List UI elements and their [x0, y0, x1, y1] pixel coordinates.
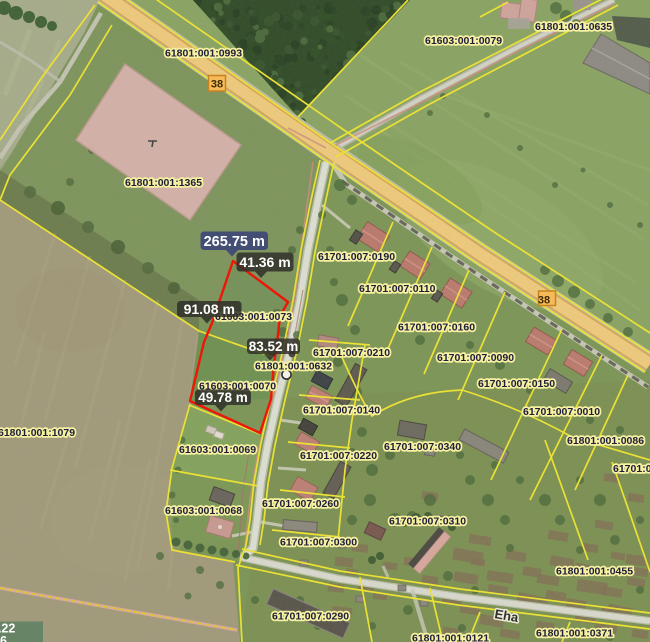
svg-text:61701:007:0160: 61701:007:0160	[398, 322, 475, 334]
svg-text:38: 38	[538, 295, 550, 307]
svg-text:38: 38	[211, 79, 223, 91]
svg-text:61701:007:0010: 61701:007:0010	[523, 406, 600, 418]
svg-text:61701:007:0110: 61701:007:0110	[359, 283, 436, 295]
svg-text:61701:007:0220: 61701:007:0220	[300, 450, 377, 462]
svg-text:61701:007:0310: 61701:007:0310	[389, 516, 466, 528]
svg-text:83.52 m: 83.52 m	[249, 339, 299, 354]
svg-text:61701:007:0300: 61701:007:0300	[280, 537, 357, 549]
svg-text:61801:001:0371: 61801:001:0371	[536, 628, 613, 640]
svg-text:61701:00: 61701:00	[613, 463, 650, 475]
svg-text:61701:007:0290: 61701:007:0290	[272, 611, 349, 623]
svg-text:61801:001:0635: 61801:001:0635	[535, 21, 612, 33]
svg-text:61801:001:0086: 61801:001:0086	[567, 435, 644, 447]
svg-text:61603:001:0079: 61603:001:0079	[425, 35, 502, 47]
svg-text:61701:007:0190: 61701:007:0190	[318, 251, 395, 263]
svg-text:61701:007:0150: 61701:007:0150	[478, 378, 555, 390]
svg-text:61701:007:0210: 61701:007:0210	[313, 347, 390, 359]
svg-text:41.36 m: 41.36 m	[239, 254, 290, 270]
svg-text:61801:001:0632: 61801:001:0632	[255, 361, 332, 373]
svg-text:86: 86	[0, 634, 7, 642]
svg-text:61801:001:0455: 61801:001:0455	[556, 566, 633, 578]
svg-text:61701:007:0090: 61701:007:0090	[437, 352, 514, 364]
svg-text:61603:001:0069: 61603:001:0069	[179, 444, 256, 456]
svg-text:91.08 m: 91.08 m	[184, 301, 235, 317]
svg-text:61801:001:1365: 61801:001:1365	[125, 177, 202, 189]
svg-text:61801:001:0121: 61801:001:0121	[412, 633, 489, 642]
svg-text:61701:007:0260: 61701:007:0260	[262, 498, 339, 510]
svg-text:61701:007:0140: 61701:007:0140	[303, 405, 380, 417]
svg-text:49.78 m: 49.78 m	[198, 390, 248, 405]
svg-text:61801:001:1079: 61801:001:1079	[0, 427, 75, 439]
svg-text:61801:001:0993: 61801:001:0993	[165, 48, 242, 60]
svg-text:265.75 m: 265.75 m	[204, 234, 265, 250]
svg-text:61701:007:0340: 61701:007:0340	[384, 441, 461, 453]
svg-text:61603:001:0068: 61603:001:0068	[165, 505, 242, 517]
